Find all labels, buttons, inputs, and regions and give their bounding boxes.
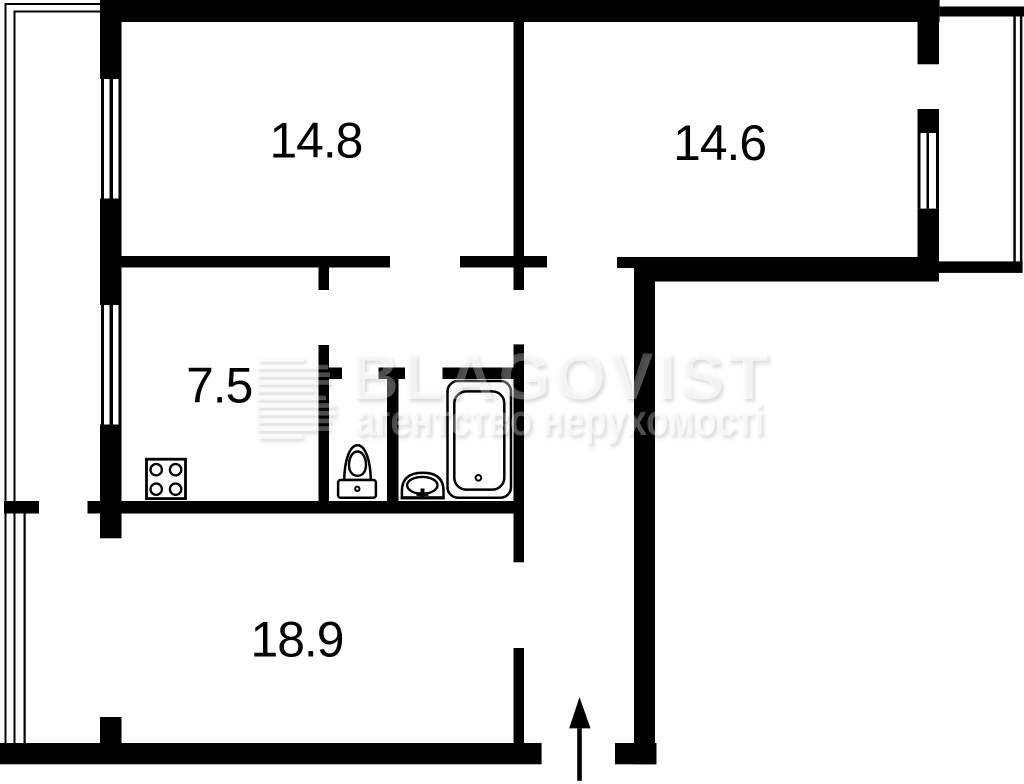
svg-text:14.8: 14.8	[269, 113, 362, 169]
svg-text:агентство нерухомості: агентство нерухомості	[355, 396, 764, 445]
svg-text:14.6: 14.6	[673, 115, 766, 171]
svg-text:7.5: 7.5	[186, 358, 252, 414]
svg-text:18.9: 18.9	[251, 611, 344, 667]
